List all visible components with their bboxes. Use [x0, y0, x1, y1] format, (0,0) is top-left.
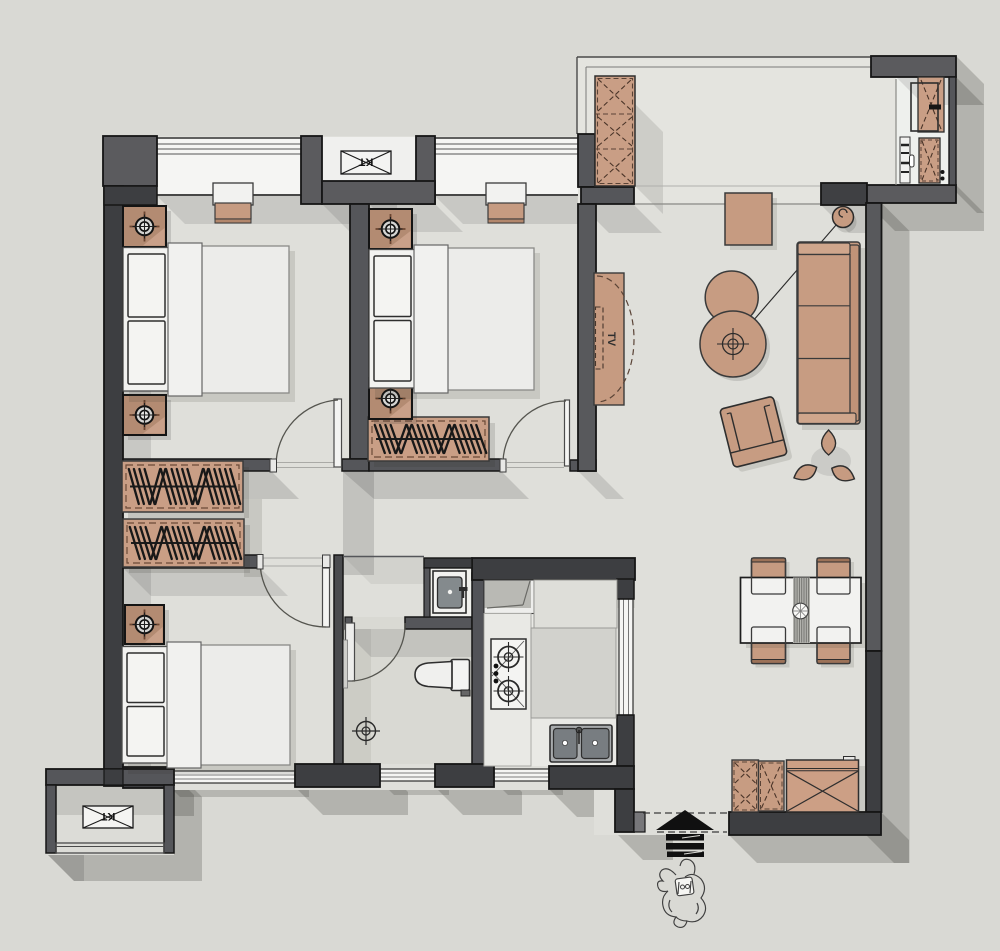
- svg-text:KT: KT: [358, 156, 373, 168]
- svg-text:TV: TV: [605, 332, 617, 347]
- svg-text:KT: KT: [100, 810, 115, 822]
